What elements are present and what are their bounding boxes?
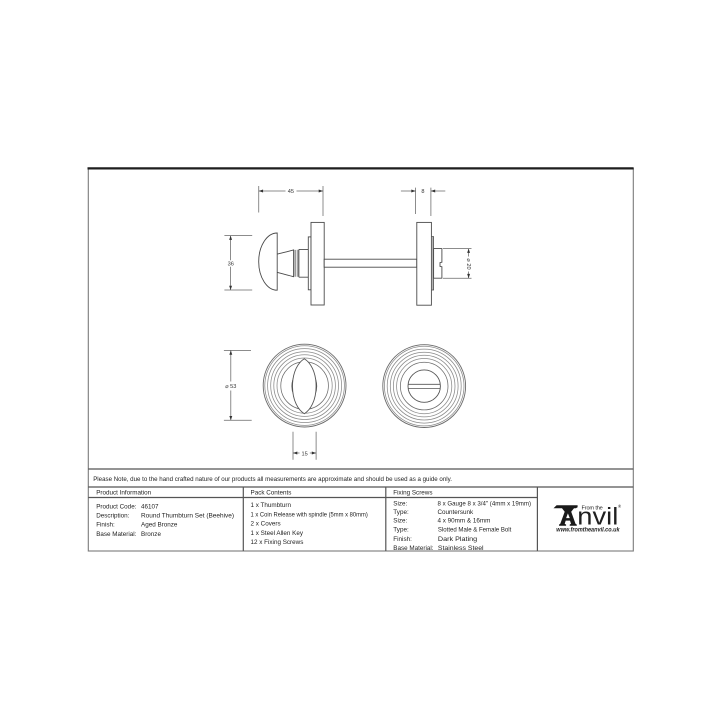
svg-text:Product Information: Product Information	[96, 489, 151, 496]
svg-text:Finish:: Finish:	[96, 522, 115, 529]
svg-text:4 x 90mm & 16mm: 4 x 90mm & 16mm	[438, 517, 491, 524]
svg-text:Countersunk: Countersunk	[438, 509, 475, 516]
svg-text:Pack Contents: Pack Contents	[251, 489, 292, 496]
svg-text:45: 45	[288, 189, 294, 195]
svg-text:Type:: Type:	[393, 509, 409, 516]
svg-text:www.fromtheanvil.co.uk: www.fromtheanvil.co.uk	[556, 527, 620, 534]
svg-text:1 x Coin Release with spindle: 1 x Coin Release with spindle (5mm x 80m…	[251, 511, 368, 518]
svg-text:46107: 46107	[141, 504, 159, 511]
svg-text:Round Thumbturn Set (Beehive): Round Thumbturn Set (Beehive)	[141, 513, 234, 520]
svg-text:⌀ 20: ⌀ 20	[465, 258, 471, 269]
svg-text:1 x Steel Allen Key: 1 x Steel Allen Key	[251, 530, 304, 537]
svg-text:Fixing Screws: Fixing Screws	[393, 490, 432, 497]
svg-text:Type:: Type:	[393, 527, 409, 534]
svg-text:Aged Bronze: Aged Bronze	[141, 522, 178, 529]
svg-text:From the: From the	[582, 505, 603, 511]
svg-text:Base Material:: Base Material:	[393, 545, 433, 552]
svg-text:Stainless Steel: Stainless Steel	[438, 545, 484, 552]
svg-text:Bronze: Bronze	[141, 531, 161, 538]
svg-text:2 x Covers: 2 x Covers	[251, 521, 281, 528]
svg-text:Please Note, due to the hand c: Please Note, due to the hand crafted nat…	[93, 476, 452, 483]
svg-text:12 x Fixing Screws: 12 x Fixing Screws	[251, 539, 304, 546]
svg-text:15: 15	[301, 451, 307, 457]
svg-text:8: 8	[421, 189, 424, 195]
svg-text:Slotted Male & Female Bolt: Slotted Male & Female Bolt	[438, 527, 512, 534]
svg-text:8 x Gauge 8 x 3/4" (4mm x 19mm: 8 x Gauge 8 x 3/4" (4mm x 19mm)	[438, 501, 532, 508]
svg-text:Dark Plating: Dark Plating	[438, 536, 478, 543]
svg-text:Description:: Description:	[96, 513, 129, 520]
svg-text:⌀ 53: ⌀ 53	[225, 384, 236, 390]
svg-text:1 x Thumbturn: 1 x Thumbturn	[251, 502, 292, 509]
svg-text:Product Code:: Product Code:	[96, 504, 137, 511]
svg-text:36: 36	[228, 262, 234, 268]
svg-text:Base Material:: Base Material:	[96, 531, 136, 538]
svg-text:Size:: Size:	[393, 517, 407, 524]
svg-text:Finish:: Finish:	[393, 536, 412, 543]
svg-text:Size:: Size:	[393, 501, 407, 508]
